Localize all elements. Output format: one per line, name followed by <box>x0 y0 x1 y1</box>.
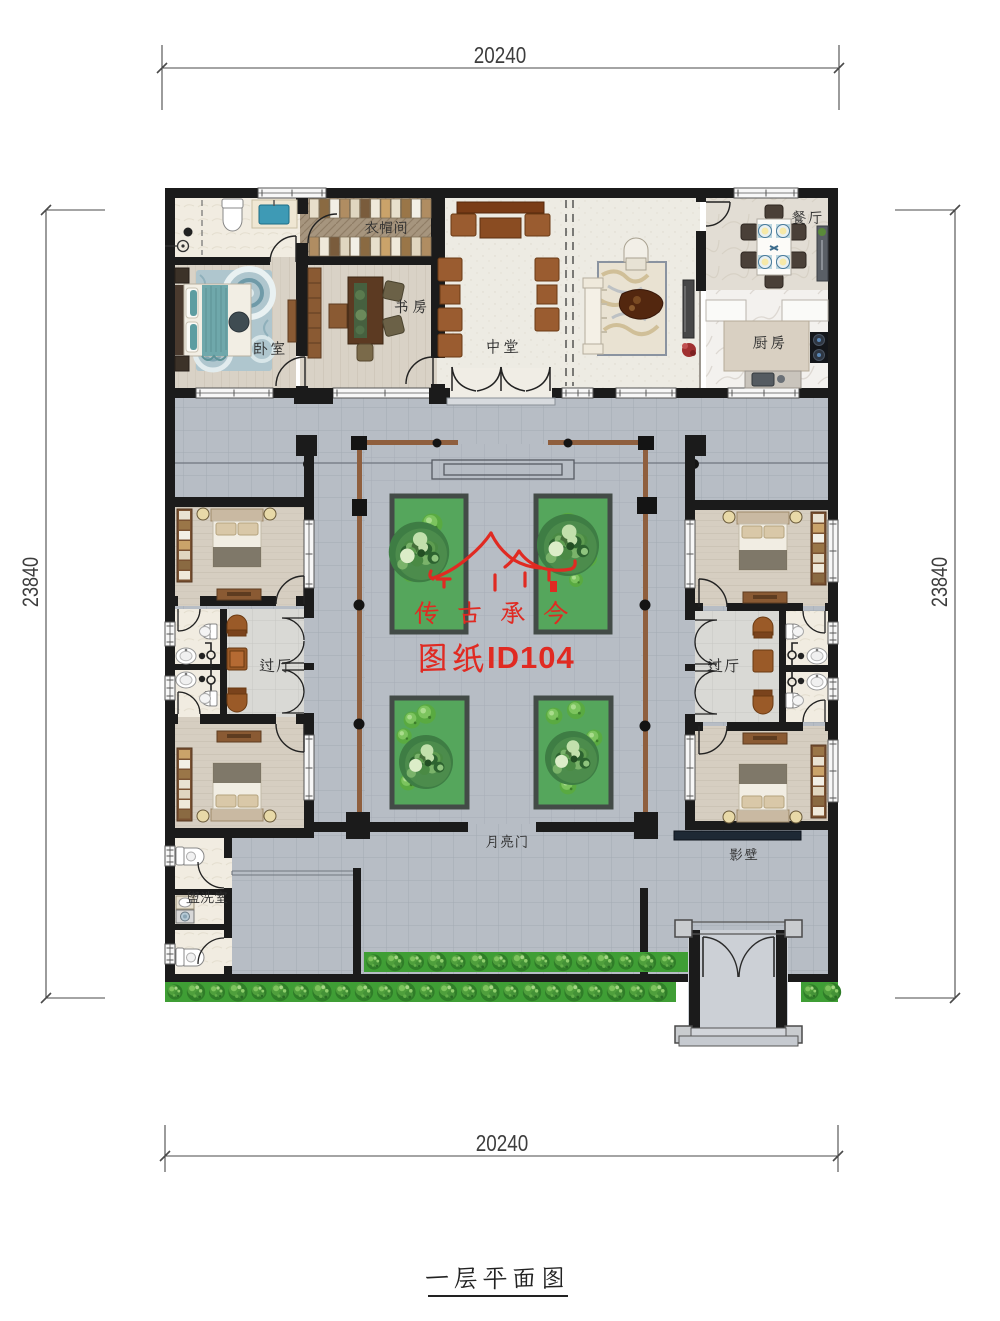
svg-text:23840: 23840 <box>928 557 952 607</box>
svg-text:ID104: ID104 <box>487 640 575 675</box>
svg-text:20240: 20240 <box>474 43 526 68</box>
svg-text:23840: 23840 <box>19 557 43 607</box>
svg-text:20240: 20240 <box>476 1131 528 1156</box>
